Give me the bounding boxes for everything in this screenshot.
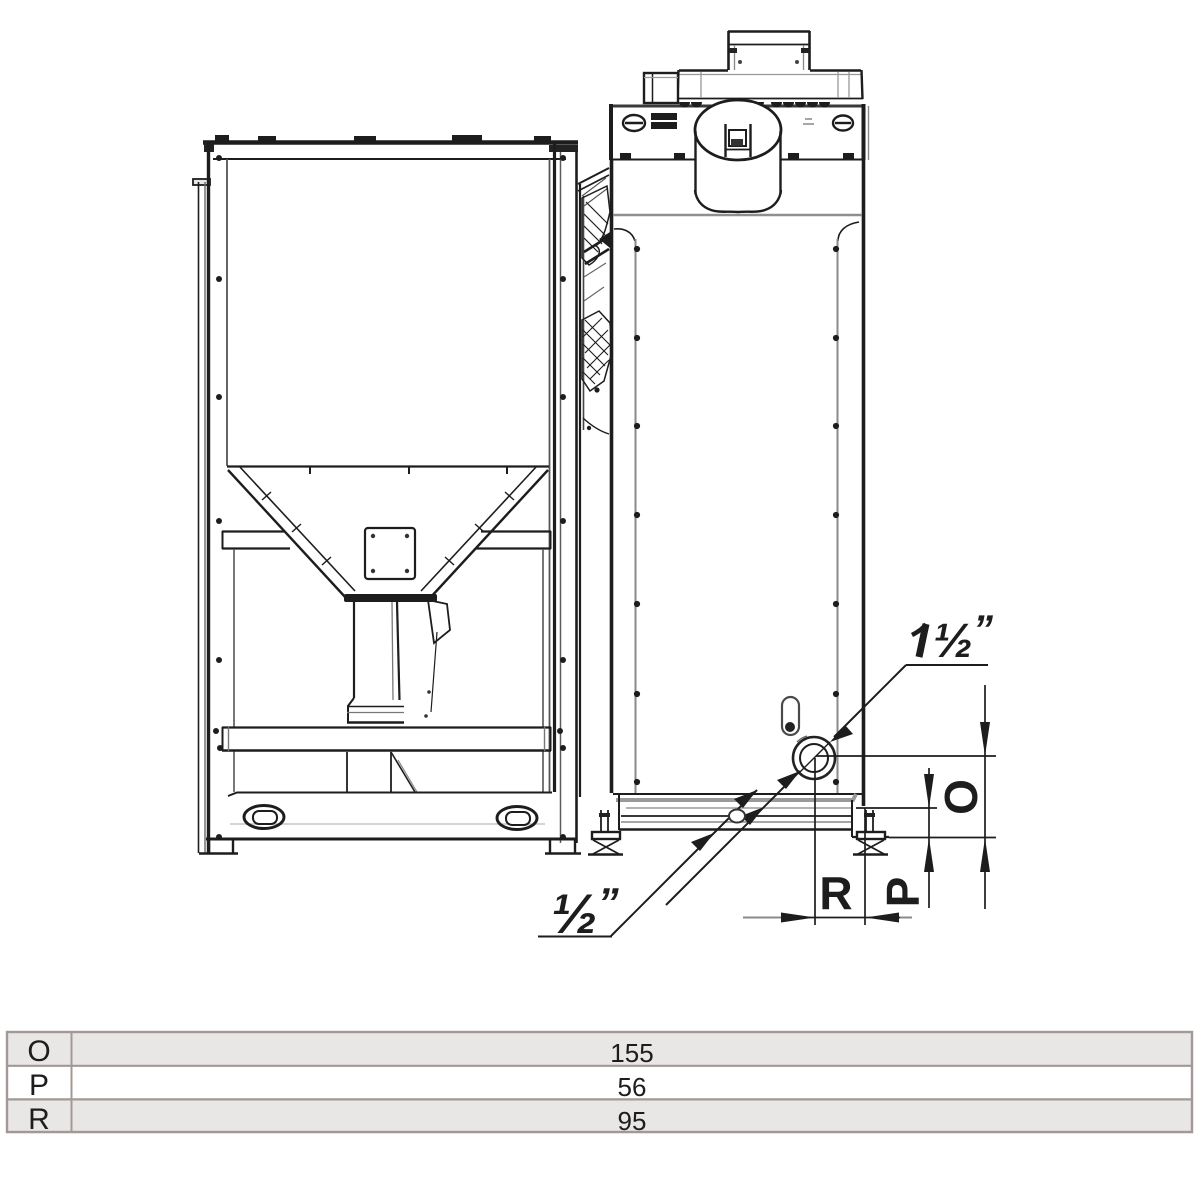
svg-text:155: 155 — [610, 1038, 653, 1068]
svg-text:95: 95 — [618, 1106, 647, 1136]
svg-text:½”: ½” — [933, 608, 993, 668]
svg-text:O: O — [27, 1035, 50, 1068]
svg-text:R: R — [819, 867, 852, 919]
svg-text:½”: ½” — [551, 879, 619, 945]
svg-text:P: P — [877, 877, 929, 908]
svg-text:P: P — [29, 1069, 49, 1102]
svg-text:56: 56 — [618, 1072, 647, 1102]
svg-text:O: O — [935, 779, 987, 815]
svg-text:R: R — [28, 1103, 50, 1136]
